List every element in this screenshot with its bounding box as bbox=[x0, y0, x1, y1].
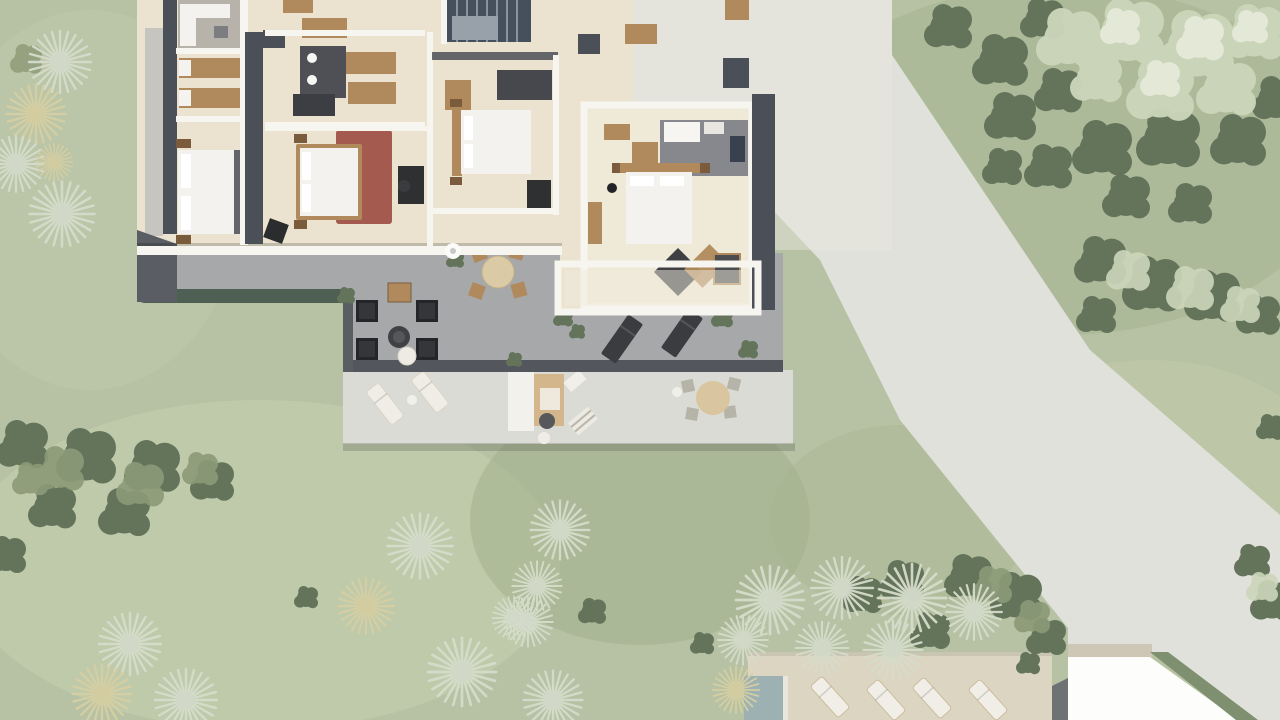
console bbox=[588, 202, 602, 244]
palm bbox=[796, 622, 849, 675]
landing bbox=[452, 16, 498, 40]
wood-stool bbox=[388, 283, 411, 302]
pergola-slat bbox=[625, 24, 657, 44]
palm bbox=[7, 85, 66, 144]
vanity bbox=[300, 46, 346, 98]
gravel-strip bbox=[145, 28, 163, 236]
side-table bbox=[672, 387, 682, 397]
parapet-terrace bbox=[558, 264, 758, 312]
sink bbox=[307, 53, 317, 63]
pool-curb bbox=[783, 676, 788, 720]
palm bbox=[338, 578, 394, 634]
round-dining-table bbox=[482, 256, 514, 288]
palm bbox=[29, 31, 91, 93]
staircase bbox=[441, 0, 531, 44]
lounge-nook bbox=[178, 0, 240, 48]
palm bbox=[946, 584, 1002, 640]
palm bbox=[713, 667, 760, 714]
palm bbox=[811, 557, 873, 619]
pergola-slat bbox=[283, 0, 313, 13]
palm bbox=[718, 615, 768, 665]
headboard bbox=[452, 108, 462, 176]
site-plan-svg: Top-down 3D render of a villa upper floo… bbox=[0, 0, 1280, 720]
palm bbox=[531, 501, 590, 560]
palm bbox=[864, 621, 923, 680]
palm bbox=[512, 561, 562, 611]
site-plan-render: Top-down 3D render of a villa upper floo… bbox=[0, 0, 1280, 720]
palm bbox=[29, 181, 94, 246]
white-side-table bbox=[398, 347, 416, 365]
palm bbox=[492, 596, 535, 639]
palm bbox=[428, 638, 496, 706]
lower-terrace bbox=[343, 370, 795, 451]
south-wall bbox=[137, 246, 562, 255]
palm bbox=[736, 566, 804, 634]
grill bbox=[539, 413, 555, 429]
floor-lamp bbox=[607, 183, 617, 193]
sun-deck bbox=[744, 652, 1052, 720]
palm bbox=[387, 513, 452, 578]
closet bbox=[293, 94, 335, 116]
palm bbox=[35, 143, 72, 180]
desk bbox=[527, 180, 551, 208]
headboard bbox=[620, 163, 700, 173]
wardrobe bbox=[497, 70, 552, 100]
palm bbox=[878, 564, 946, 632]
side-table bbox=[407, 395, 417, 405]
pergola-slat bbox=[725, 0, 749, 20]
parasol bbox=[696, 381, 730, 415]
sink bbox=[307, 75, 317, 85]
palm bbox=[99, 613, 161, 675]
